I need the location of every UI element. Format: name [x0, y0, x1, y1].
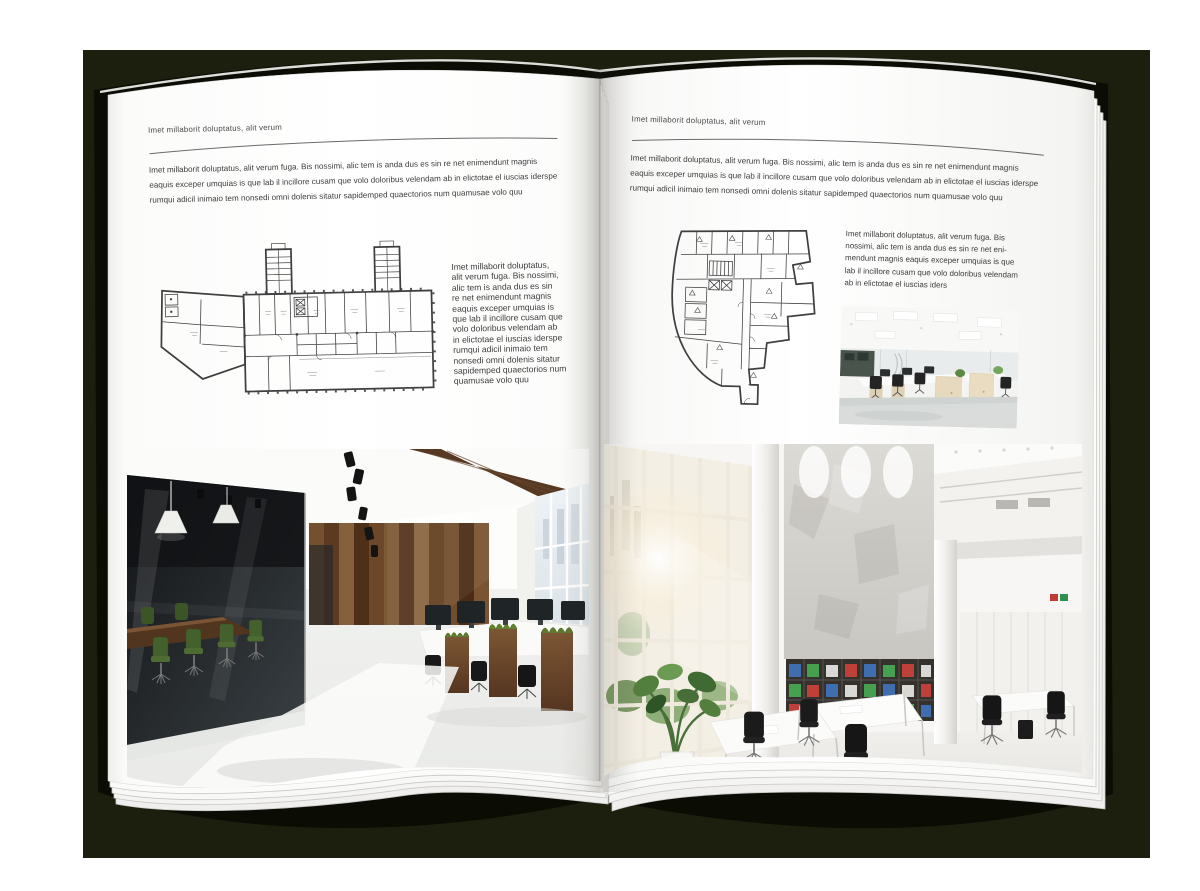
- right-side-paragraph: Imet millaborit doluptatus, alit verum f…: [844, 228, 1041, 294]
- magazine-mockup-canvas: Imet millaborit doluptatus, alit verum I…: [0, 0, 1200, 891]
- floor-plan-right: [648, 221, 841, 412]
- right-page-content: Imet millaborit doluptatus, alit verum I…: [0, 0, 1200, 891]
- right-page-header: Imet millaborit doluptatus, alit verum: [632, 114, 766, 127]
- right-intro-paragraph: Imet millaborit doluptatus, alit verum f…: [630, 150, 1061, 206]
- office-photo-small: [839, 306, 1020, 429]
- office-photo-small-illustration: [839, 306, 1020, 429]
